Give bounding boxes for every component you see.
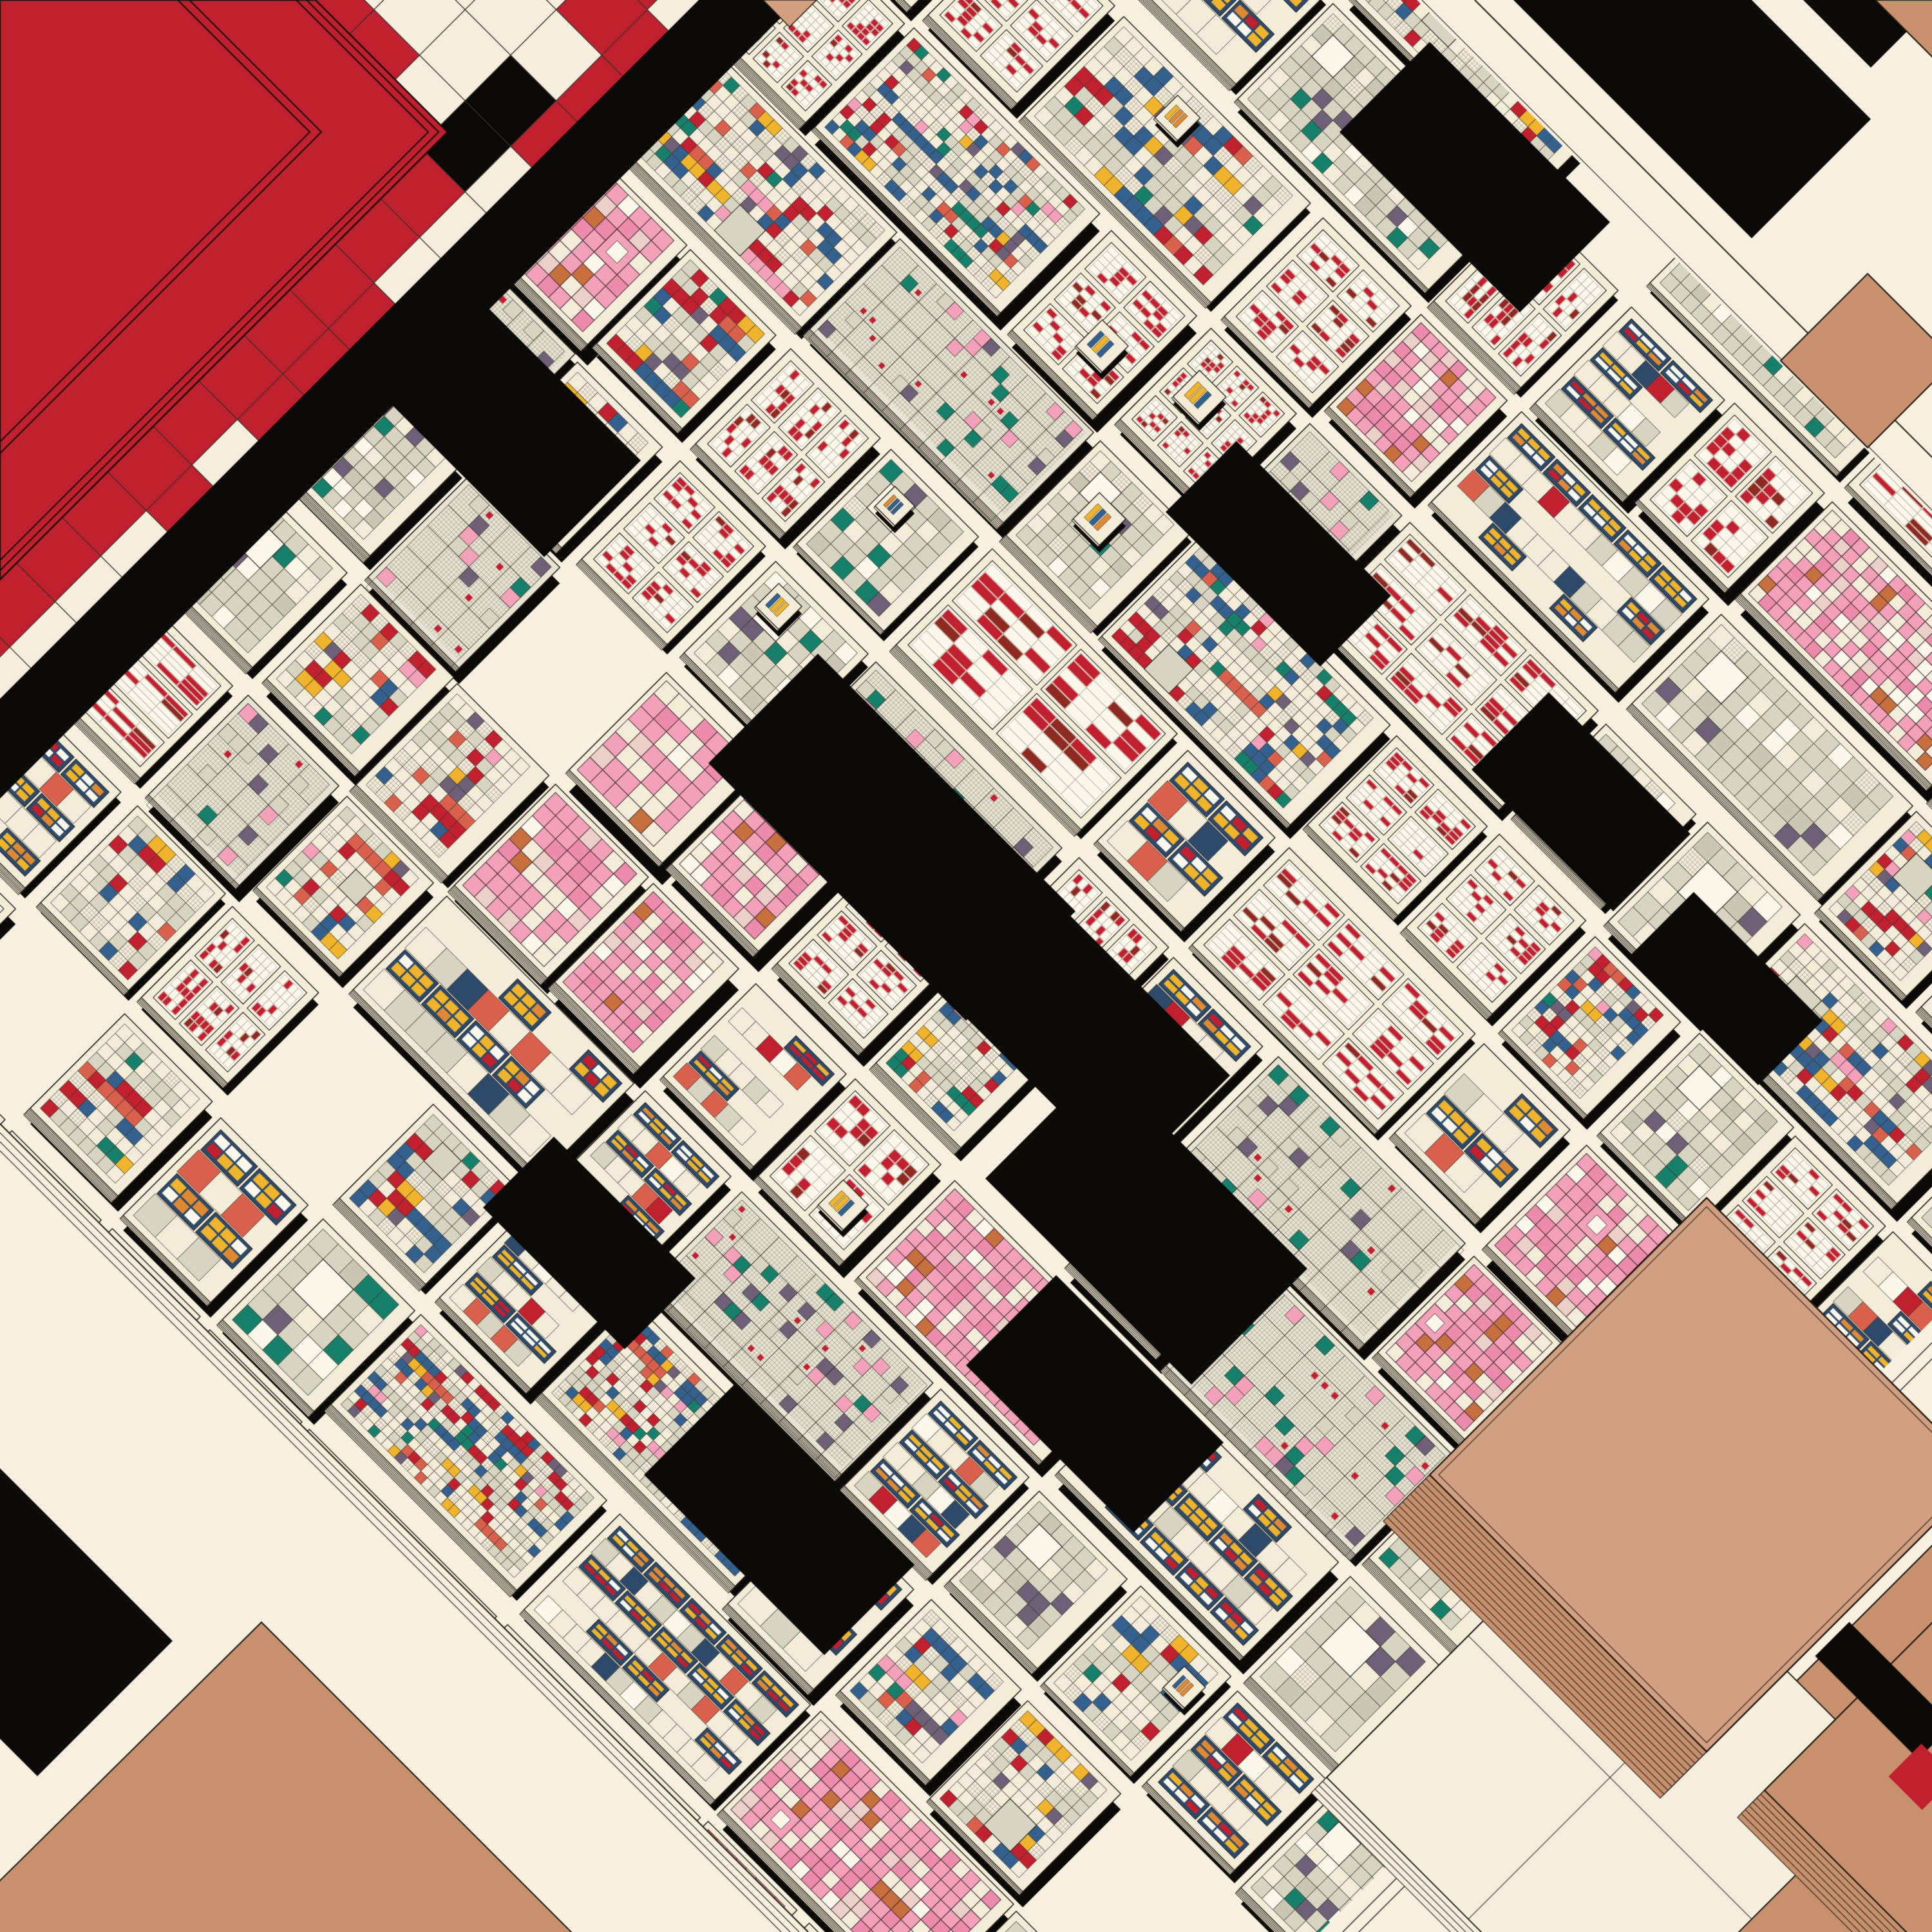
isometric-mosaic-city-canvas xyxy=(0,0,1932,1932)
generative-artwork xyxy=(0,0,1932,1932)
